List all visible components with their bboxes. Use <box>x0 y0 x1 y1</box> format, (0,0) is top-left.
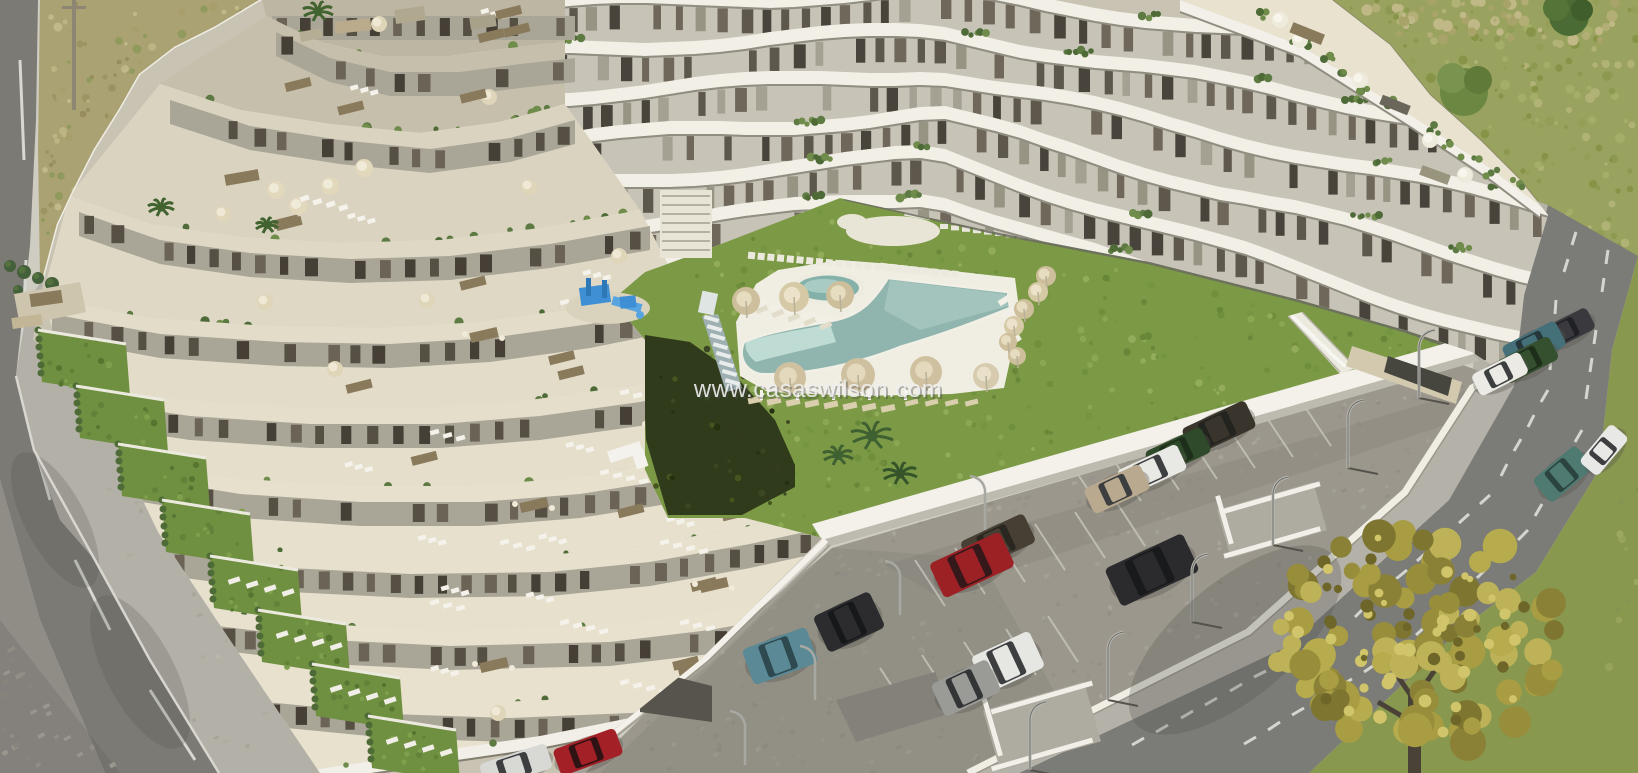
svg-text:www.casaswilson.com: www.casaswilson.com <box>693 376 942 403</box>
